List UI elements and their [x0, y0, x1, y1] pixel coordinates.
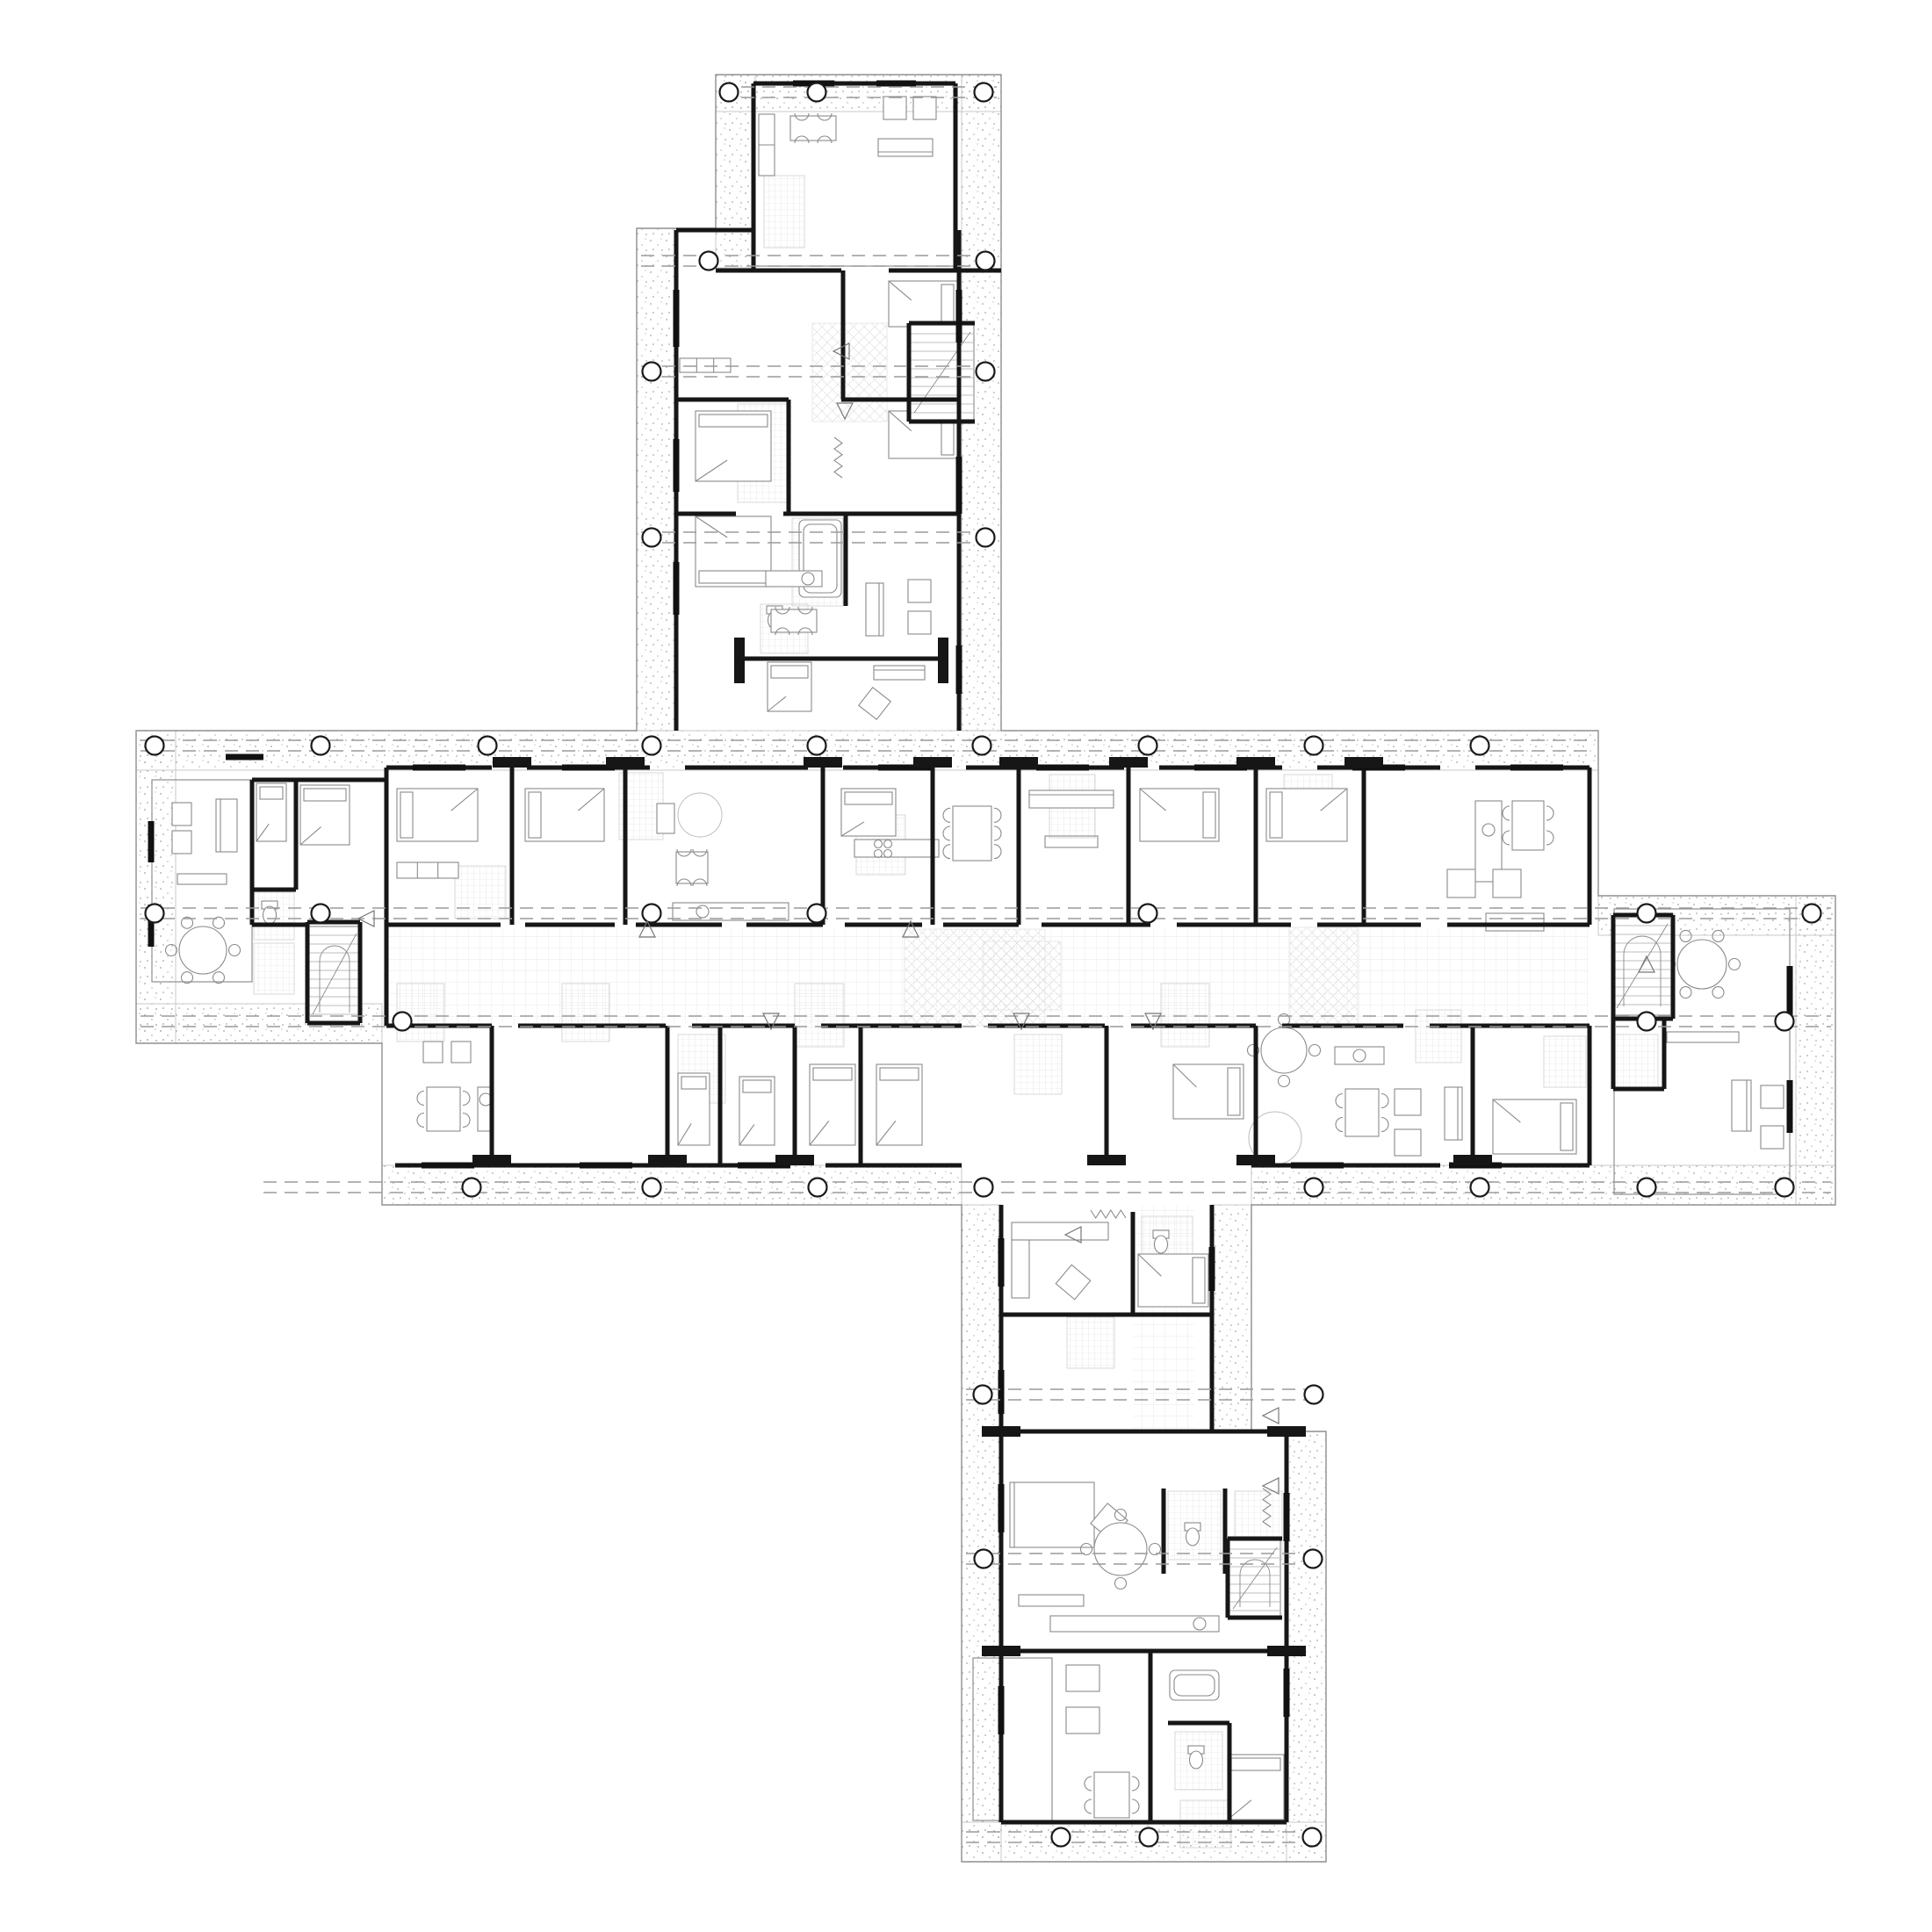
- floorplan-drawing: [0, 0, 1932, 1932]
- floorplan-sheet: [0, 0, 1932, 1932]
